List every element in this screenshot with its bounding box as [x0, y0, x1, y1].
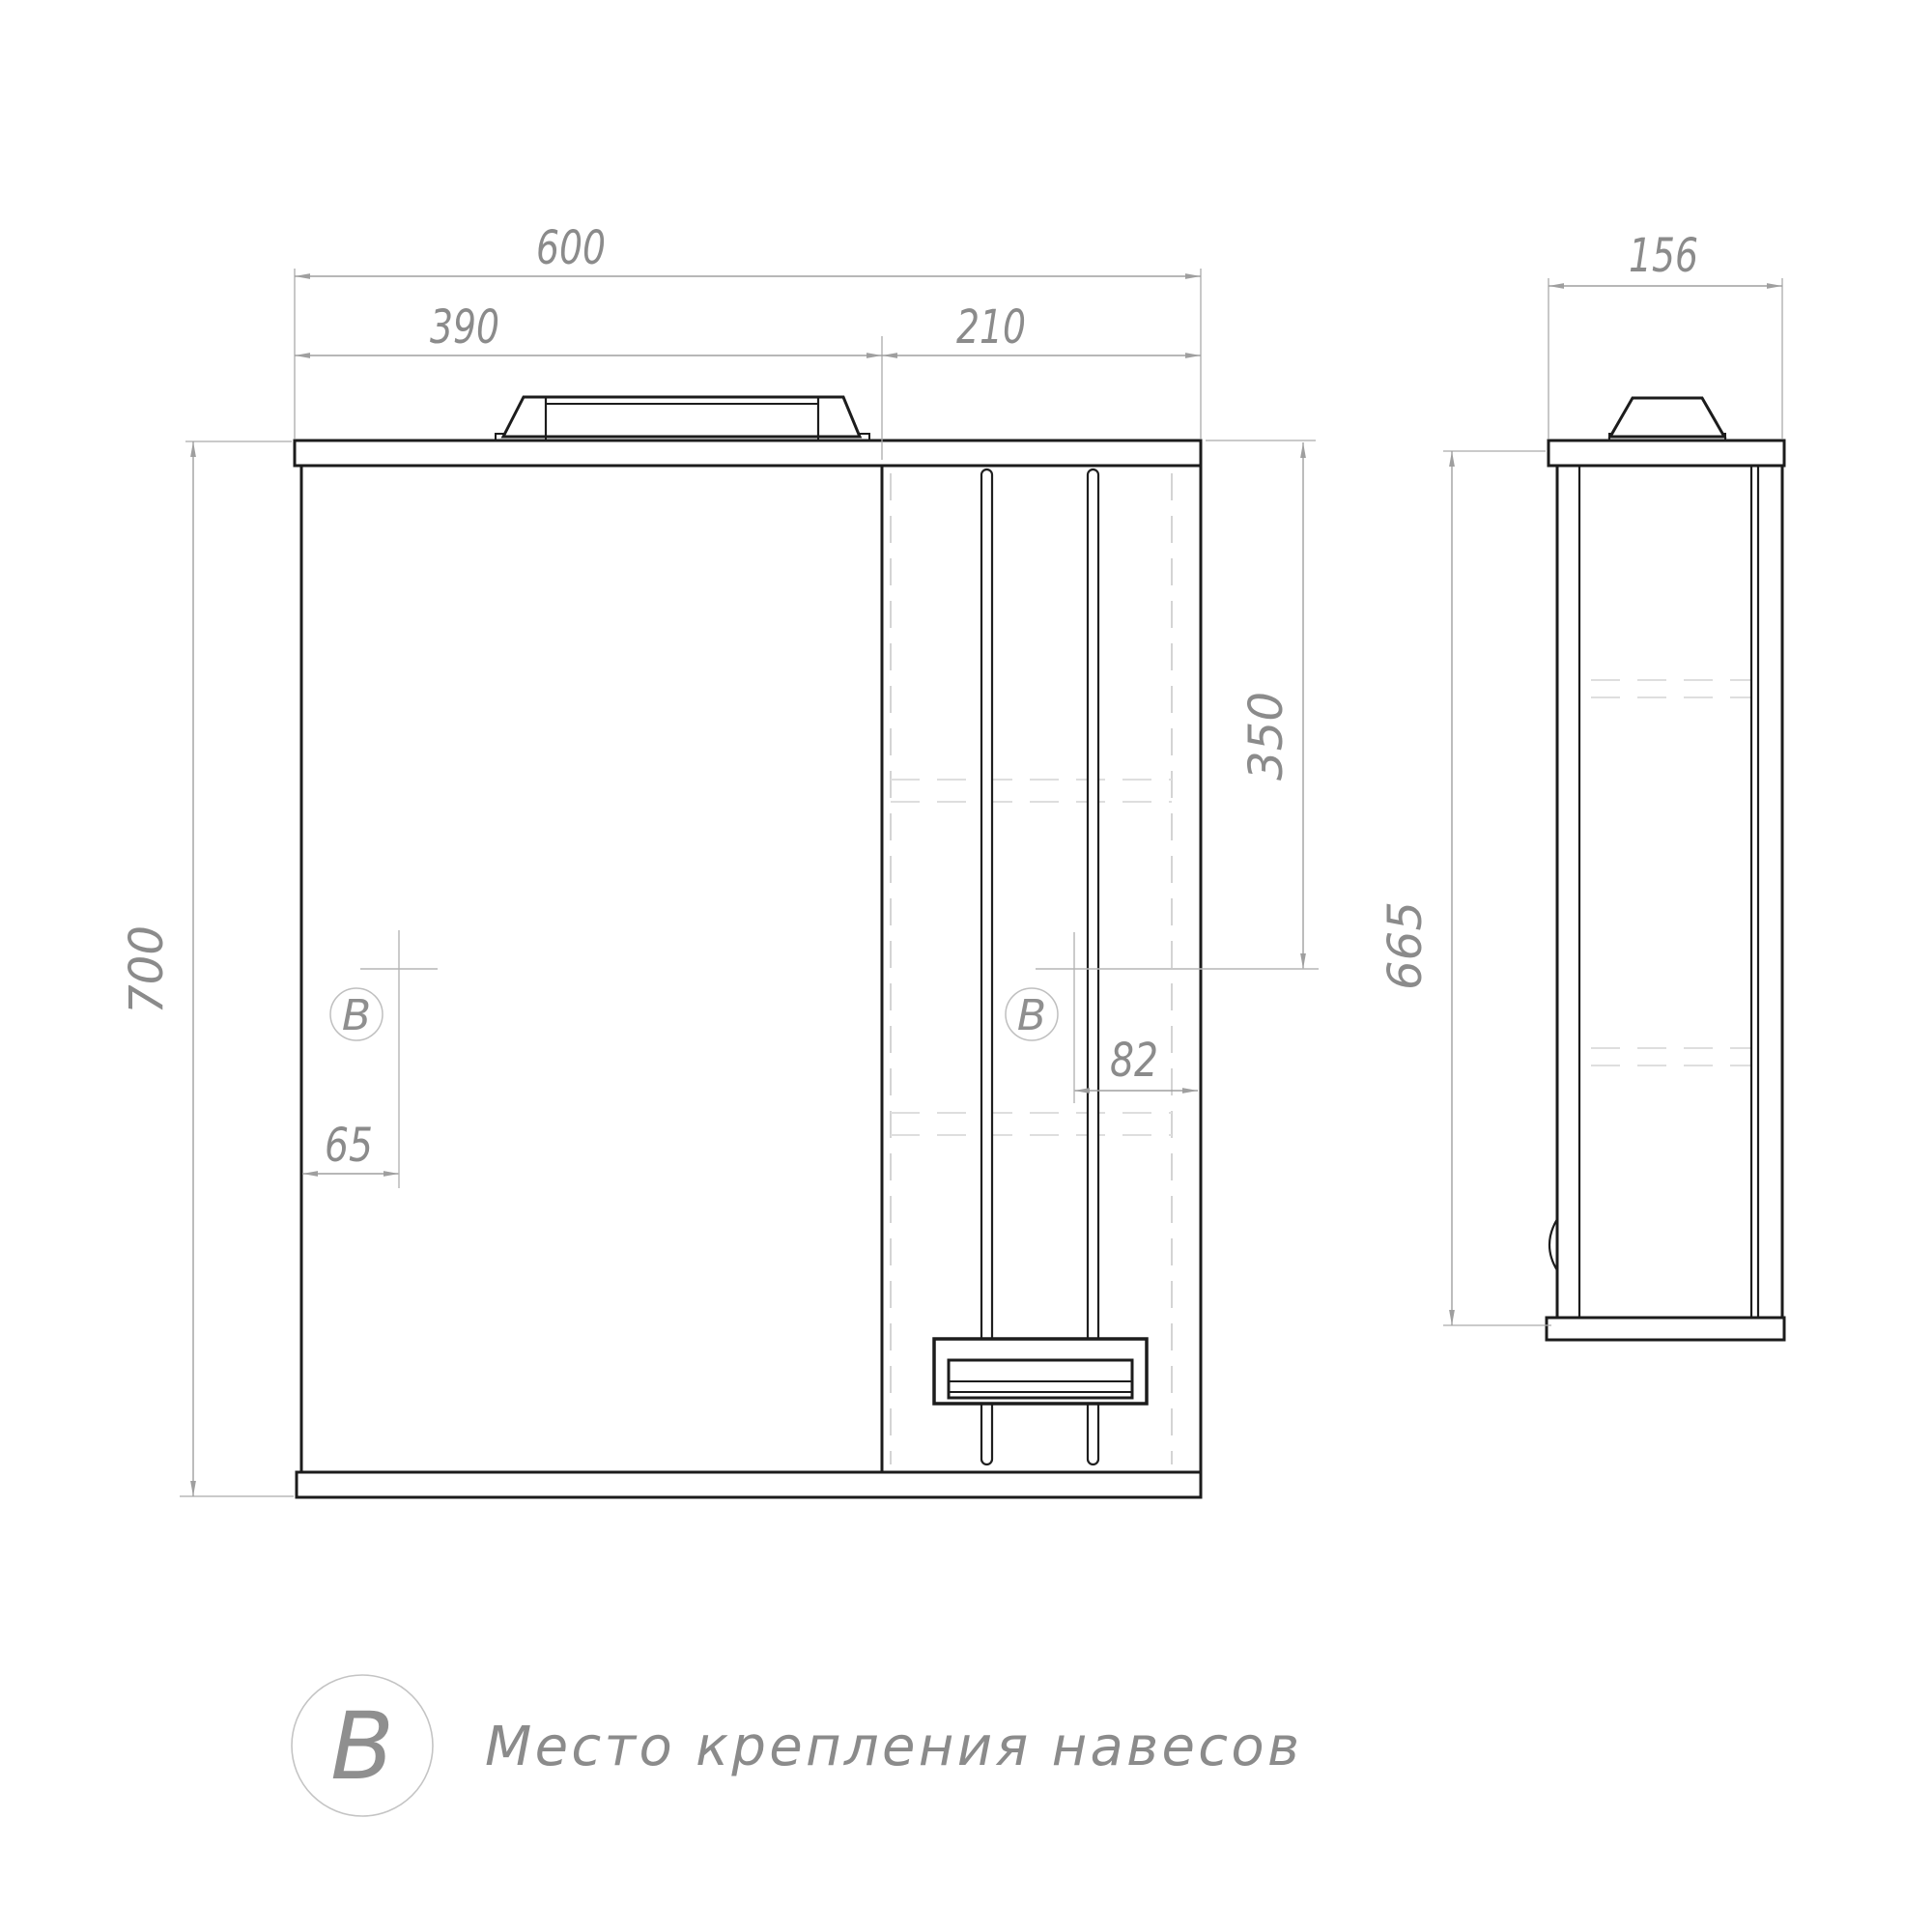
- mount-marker-letter-right: В: [1017, 991, 1046, 1040]
- dimensions: 600 390 210 700 350 82 65 156 665 В В: [120, 221, 1782, 1496]
- legend-marker-letter: В: [330, 1692, 394, 1801]
- dim-label-700: 700: [120, 925, 174, 1014]
- front-view: [295, 397, 1201, 1497]
- door-groove-right: [1088, 469, 1098, 1464]
- dim-label-65: 65: [325, 1119, 373, 1173]
- legend-description: Место крепления навесов: [485, 1716, 1299, 1778]
- dim-label-665: 665: [1378, 901, 1433, 990]
- door-groove-left: [981, 469, 992, 1464]
- dim-label-82: 82: [1110, 1034, 1158, 1088]
- mount-marker-letter-left: В: [342, 991, 371, 1040]
- front-lamp: [496, 397, 869, 441]
- door-handle: [934, 1339, 1147, 1404]
- side-bottom-board: [1547, 1318, 1784, 1340]
- side-top-board: [1548, 440, 1784, 466]
- side-body-outline: [1557, 466, 1782, 1318]
- side-view: [1547, 398, 1784, 1340]
- technical-drawing-page: 600 390 210 700 350 82 65 156 665 В В В …: [0, 0, 1932, 1932]
- legend: В Место крепления навесов: [292, 1675, 1299, 1816]
- dim-label-390: 390: [430, 300, 499, 355]
- side-hidden-shelf-lines: [1591, 680, 1750, 1065]
- front-bottom-board: [297, 1472, 1201, 1497]
- mount-crosshair-right: [1036, 932, 1319, 1103]
- dim-label-350: 350: [1239, 692, 1293, 781]
- dim-label-600: 600: [536, 221, 606, 275]
- dim-label-210: 210: [956, 300, 1026, 355]
- front-top-board: [295, 440, 1201, 466]
- dim-label-156: 156: [1629, 229, 1698, 283]
- side-lamp: [1609, 398, 1725, 441]
- mirror-cabinet-drawing: 600 390 210 700 350 82 65 156 665 В В В …: [0, 0, 1932, 1932]
